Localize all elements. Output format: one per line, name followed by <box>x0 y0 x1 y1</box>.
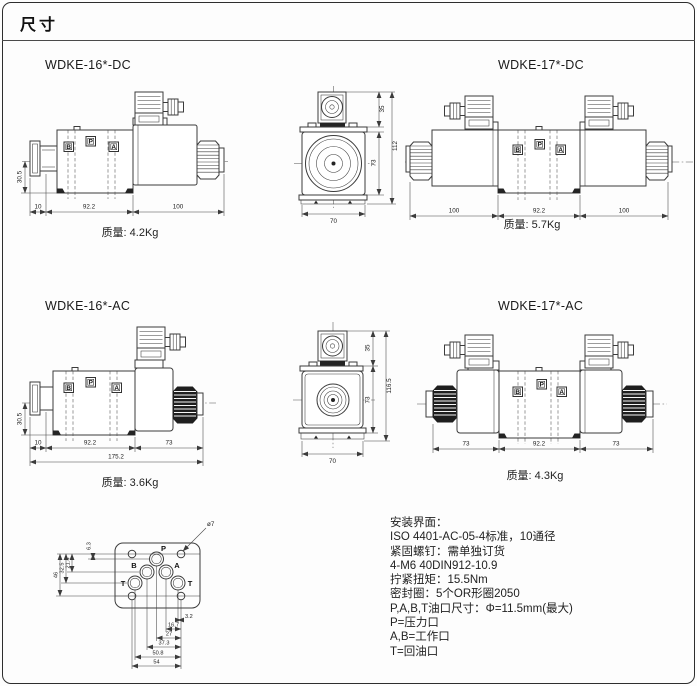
vdim-6-3: 6.3 <box>87 542 93 550</box>
solenoid-coil <box>135 360 203 431</box>
note-line: P,A,B,T油口尺寸：Φ=11.5mm(最大) <box>390 602 573 616</box>
left-coil <box>406 122 498 186</box>
hdim-16-7: 16.7 <box>168 623 179 629</box>
right-coil <box>580 361 653 433</box>
connector-end <box>308 92 357 127</box>
note-line: 安装界面： <box>390 516 573 530</box>
dim-73: 73 <box>365 396 372 404</box>
port-label-p: P <box>538 142 543 149</box>
din-connector <box>135 92 184 125</box>
port-label-a: A <box>114 385 119 392</box>
dim-92-2: 92.2 <box>84 440 97 447</box>
dim-116-5: 116.5 <box>386 378 393 394</box>
port-label-a: A <box>558 147 563 154</box>
port-label-p: P <box>89 139 94 146</box>
drawing-end-view-dc: 35 73 112 70 <box>288 84 403 229</box>
note-line: P=压力口 <box>390 616 573 630</box>
port-label-b: B <box>66 385 71 392</box>
note-line: 紧固螺钉：需单独订货 <box>390 545 573 559</box>
iface-port-t-left: T <box>121 579 126 588</box>
solenoid-coil <box>133 118 224 185</box>
left-connector <box>445 335 494 368</box>
datasheet-page: 尺寸 <box>0 0 697 686</box>
drawing-wdke-17-dc: B P A 100 92.2 100 <box>403 82 695 234</box>
iface-port-b: B <box>131 561 137 570</box>
din-connector <box>137 327 186 360</box>
port-label-p: P <box>540 382 545 389</box>
manual-override-cap <box>30 382 53 415</box>
dim-92-2: 92.2 <box>533 208 546 215</box>
dim-112: 112 <box>392 140 399 151</box>
right-connector <box>585 335 634 368</box>
installation-notes: 安装界面： ISO 4401-AC-05-4标准，10通径 紧固螺钉：需单独订货… <box>390 516 573 659</box>
page-title: 尺寸 <box>20 11 58 35</box>
note-line: 拧紧扭矩：15.5Nm <box>390 573 573 587</box>
drawing-end-view-ac: 35 73 116.5 70 <box>285 316 403 471</box>
drawing-mounting-interface: P B A T T ø7 6.3 21.4 32.5 46 <box>30 515 248 680</box>
port-label-b: B <box>515 147 520 154</box>
dim-35: 35 <box>365 344 372 352</box>
dim-30-5: 30.5 <box>17 170 24 183</box>
iface-port-a: A <box>174 561 180 570</box>
dim-92-2: 92.2 <box>83 204 96 211</box>
port-label-b: B <box>66 144 71 151</box>
valve-body <box>499 368 580 445</box>
dim-100-left: 100 <box>449 208 460 215</box>
dim-73: 73 <box>371 159 378 167</box>
connector-end <box>309 331 357 366</box>
port-label-a: A <box>559 389 564 396</box>
vdim-21-4: 21.4 <box>66 558 72 569</box>
dim-100: 100 <box>173 204 184 211</box>
note-line: ISO 4401-AC-05-4标准，10通径 <box>390 530 573 544</box>
label-wdke-16-ac: WDKE-16*-AC <box>45 299 130 313</box>
note-line: A,B=工作口 <box>390 630 573 644</box>
right-coil <box>580 122 672 186</box>
left-coil <box>426 361 499 433</box>
valve-body-end <box>299 366 366 439</box>
dim-10: 10 <box>34 204 42 211</box>
drawing-wdke-17-ac: B P A 73 92.2 73 <box>403 316 695 476</box>
left-connector <box>445 96 494 129</box>
port-label-b: B <box>515 389 520 396</box>
note-line: 密封圈：5个OR形圈2050 <box>390 587 573 601</box>
drawing-wdke-16-ac: B P A 30.5 10 92.2 73 175.2 <box>18 316 243 481</box>
label-wdke-17-dc: WDKE-17*-DC <box>498 58 584 72</box>
dim-100-right: 100 <box>619 208 630 215</box>
vdim-46: 46 <box>54 572 60 578</box>
vdim-32-5: 32.5 <box>60 563 66 574</box>
iface-port-p: P <box>161 544 166 553</box>
note-line: 4-M6 40DIN912-10.9 <box>390 559 573 573</box>
manual-override-cap <box>30 141 57 176</box>
note-line: T=回油口 <box>390 645 573 659</box>
hdim-27: 27 <box>166 632 172 638</box>
dim-73: 73 <box>165 440 173 447</box>
right-connector <box>585 96 634 129</box>
dim-30-5: 30.5 <box>17 412 24 425</box>
dim-10: 10 <box>34 440 42 447</box>
drawing-wdke-16-dc: B P A 30.5 10 92.2 100 <box>18 78 240 230</box>
interface-plate <box>115 543 200 608</box>
label-wdke-17-ac: WDKE-17*-AC <box>498 299 583 313</box>
dim-73-left: 73 <box>462 441 470 448</box>
title-separator <box>2 40 695 41</box>
dim-35: 35 <box>379 105 386 113</box>
horizontal-dimensions: 3.2 16.7 27 37.3 50.8 54 <box>132 566 193 669</box>
dim-175-2: 175.2 <box>108 454 124 461</box>
valve-body-end <box>299 127 367 204</box>
dim-92-2: 92.2 <box>533 441 546 448</box>
hdim-54: 54 <box>153 660 159 666</box>
hdim-50-8: 50.8 <box>153 651 164 657</box>
dim-70: 70 <box>330 218 338 225</box>
valve-body <box>498 127 580 201</box>
dim-73-right: 73 <box>612 441 620 448</box>
hdim-3-2: 3.2 <box>185 614 193 620</box>
iface-port-t-right: T <box>188 579 193 588</box>
hole-diameter-label: ø7 <box>207 521 215 528</box>
dim-70: 70 <box>329 458 337 465</box>
port-label-a: A <box>111 144 116 151</box>
label-wdke-16-dc: WDKE-16*-DC <box>45 58 131 72</box>
hdim-37-3: 37.3 <box>159 641 170 647</box>
port-label-p: P <box>89 380 94 387</box>
